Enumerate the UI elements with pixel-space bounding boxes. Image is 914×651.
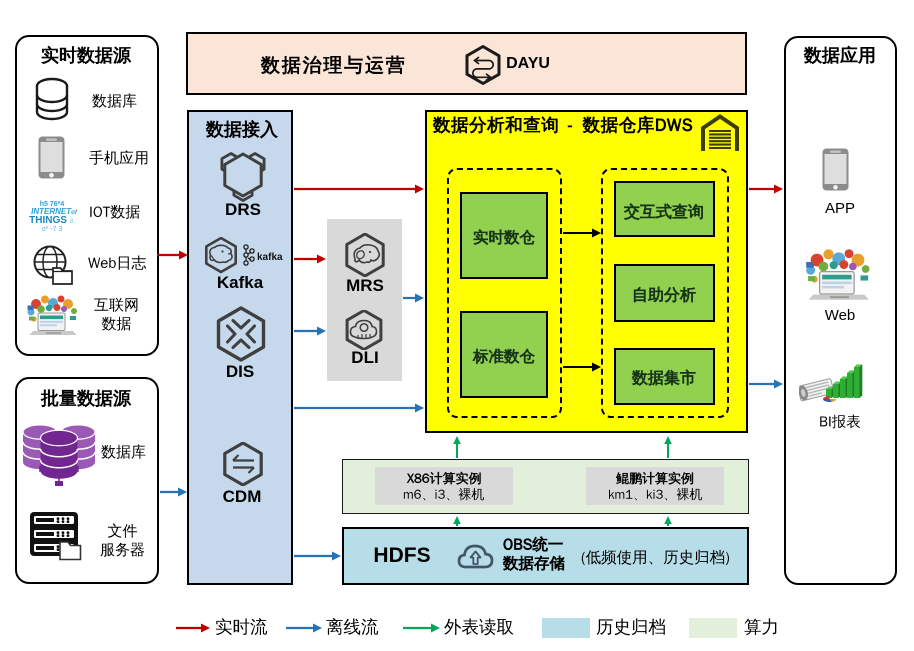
svg-text:kafka: kafka	[257, 252, 283, 263]
svg-text:THINGS: THINGS	[29, 215, 67, 226]
svg-text:8.: 8.	[70, 219, 75, 225]
svg-text:o* -7 3: o* -7 3	[42, 226, 63, 233]
